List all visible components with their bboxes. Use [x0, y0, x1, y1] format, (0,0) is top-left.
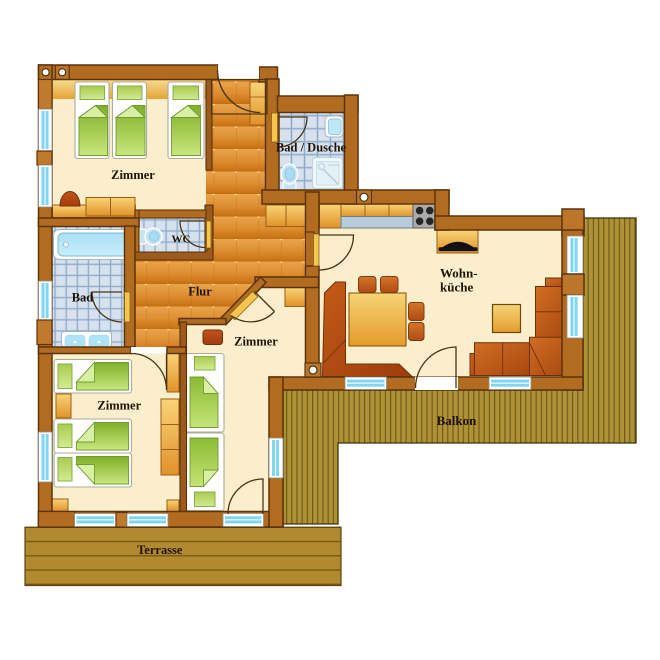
svg-text:Terrasse: Terrasse — [137, 543, 183, 557]
svg-text:Balkon: Balkon — [437, 413, 478, 428]
svg-text:küche: küche — [440, 279, 473, 294]
svg-text:Zimmer: Zimmer — [234, 335, 278, 349]
svg-text:Bad: Bad — [72, 291, 94, 305]
svg-text:Flur: Flur — [188, 285, 212, 299]
svg-text:WC: WC — [172, 234, 191, 246]
svg-text:Zimmer: Zimmer — [111, 168, 155, 182]
svg-text:Bad / Dusche: Bad / Dusche — [276, 141, 347, 155]
svg-text:Zimmer: Zimmer — [97, 398, 141, 412]
